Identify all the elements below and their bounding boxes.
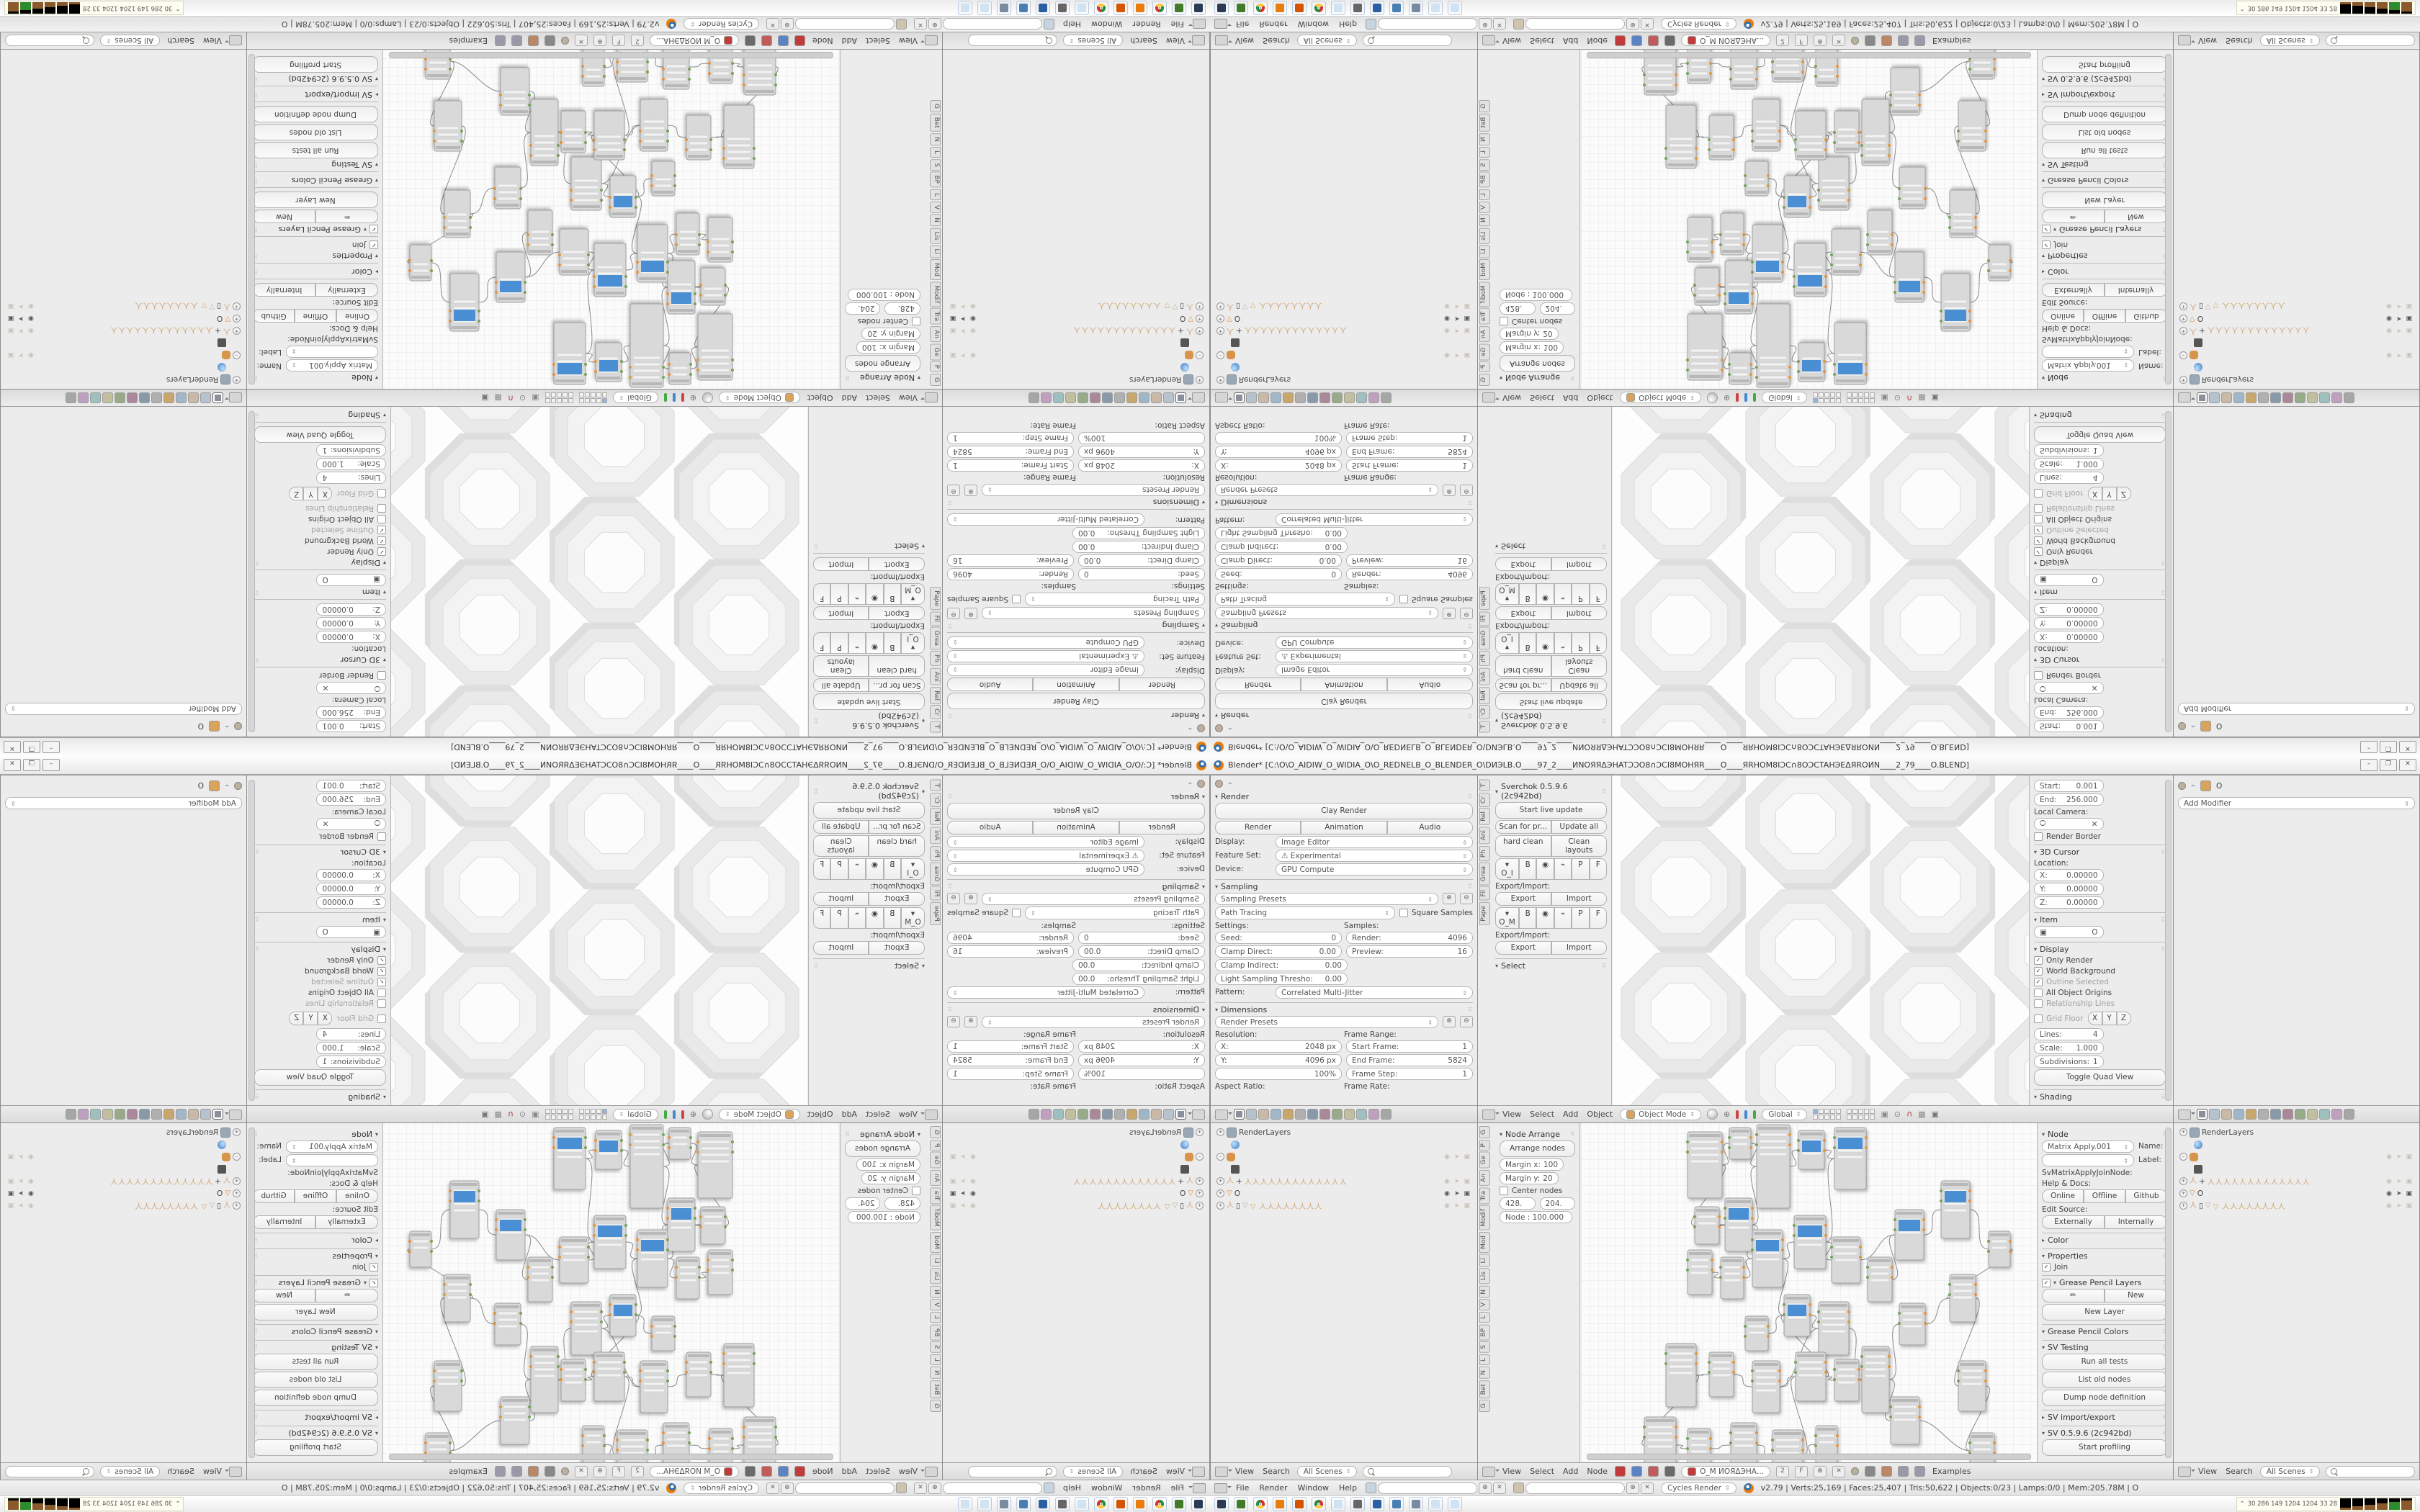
node-socket-in[interactable] (1833, 1378, 1836, 1381)
nodeprops-join-checkbox[interactable]: ✓Join (2042, 1263, 2167, 1272)
camera-toggle-icon[interactable]: ▣ (8, 328, 14, 335)
camera-toggle-icon[interactable]: ▣ (950, 352, 956, 359)
node-socket-out[interactable] (1801, 60, 1804, 63)
add-modifier-dropdown[interactable]: Add Modifier (5, 797, 242, 809)
layer-cell[interactable] (557, 1115, 562, 1120)
view-render-border-checkbox[interactable]: Render Border (254, 832, 386, 841)
node-socket-in[interactable] (1833, 363, 1836, 366)
render-x-field[interactable]: 100% (1078, 432, 1205, 444)
view-scale--field[interactable]: Scale:1.000 (317, 458, 387, 470)
window-titlebar[interactable]: Blender* [C:\O\O_AIDIW_O_WIDIA_O\O_REDNE… (0, 737, 1210, 756)
node-socket-in[interactable] (1724, 292, 1726, 295)
snap-magnet-icon[interactable]: ∪ (1906, 1110, 1912, 1119)
visibility-toggles[interactable]: ◉➤▣ (5, 1190, 34, 1197)
node-socket-in[interactable] (624, 285, 627, 288)
properties-tab-11-icon[interactable] (78, 1109, 89, 1120)
object-breadcrumb[interactable]: O (198, 722, 204, 731)
node-socket-out[interactable] (616, 71, 619, 73)
info-editor-icon[interactable] (1193, 1483, 1206, 1493)
pin-icon[interactable] (1197, 780, 1205, 788)
node-tab-bp[interactable]: BP (930, 172, 941, 188)
arrange-204--field[interactable]: 204. (1540, 302, 1576, 315)
properties-tab-2-icon[interactable] (1151, 392, 1162, 403)
view-toggle-quad-view-button[interactable]: Toggle Quad View (2034, 1069, 2166, 1086)
header-tool-2-icon[interactable] (1898, 35, 1909, 46)
square-samples-checkbox[interactable]: Square Samples (947, 909, 1021, 917)
expand-icon[interactable]: – (233, 1153, 241, 1161)
outliner-row[interactable] (947, 1163, 1205, 1175)
layer-cell[interactable] (1847, 392, 1852, 397)
node-socket-in[interactable] (689, 363, 692, 366)
tree-type-1-icon[interactable] (778, 35, 789, 46)
sverchok-node[interactable] (650, 1316, 676, 1351)
nodeprops-join-checkbox[interactable]: ✓Join (253, 240, 378, 249)
blender-app-icon[interactable] (1273, 1, 1287, 15)
node-socket-out[interactable] (707, 240, 709, 243)
render-animation-button[interactable]: Animation (1301, 678, 1386, 691)
header-tool-1-icon[interactable] (1881, 35, 1892, 46)
sverchok-node[interactable] (1866, 210, 1894, 255)
panel-header-render-dimensions[interactable]: ▾Dimensions⠿ (1215, 1002, 1473, 1014)
outliner2-menu-search[interactable]: Search (2224, 36, 2254, 45)
node-socket-in[interactable] (524, 1228, 526, 1231)
sverchok-toggle-⌁[interactable]: ⌁ (848, 583, 866, 605)
node-socket-in[interactable] (731, 251, 734, 253)
node-socket-out[interactable] (2009, 259, 2012, 262)
layer-cell[interactable] (596, 1115, 601, 1120)
view3d-menu-view[interactable]: View (1501, 1110, 1523, 1119)
outliner-row[interactable] (1215, 1138, 1473, 1151)
node-socket-in[interactable] (623, 138, 626, 141)
panel-header-nodeprops-node[interactable]: ▾Node⠿ (253, 373, 378, 382)
menu-file[interactable]: File (1234, 19, 1250, 29)
node-socket-in[interactable] (698, 243, 701, 246)
shelf-tab-t[interactable]: T (930, 721, 941, 733)
tree-type-2-icon[interactable] (761, 35, 772, 46)
node-socket-in[interactable] (1894, 291, 1896, 294)
viewport-canvas[interactable] (391, 775, 807, 1105)
node-socket-out[interactable] (526, 1276, 529, 1279)
sverchok-node[interactable] (666, 261, 696, 314)
scene-field[interactable] (1525, 1482, 1625, 1494)
node-socket-in[interactable] (1814, 65, 1817, 68)
view-x--field[interactable]: X:0.00000 (2034, 631, 2104, 643)
node-socket-out[interactable] (743, 84, 745, 86)
node-socket-in[interactable] (753, 1352, 756, 1355)
tree-type-0-icon[interactable] (1615, 35, 1626, 46)
node-tab-p[interactable]: P (1479, 361, 1490, 372)
node-socket-out[interactable] (1749, 363, 1752, 366)
preset-add-button[interactable]: ⊕ (964, 485, 977, 496)
node-socket-in[interactable] (603, 1434, 606, 1437)
node-tab-modif[interactable]: Modif (930, 282, 941, 307)
node-socket-in[interactable] (666, 261, 669, 264)
tree-type-2-icon[interactable] (1648, 35, 1659, 46)
cursor-icon[interactable]: ➤ (2396, 352, 2402, 359)
node-tab-s[interactable]: S (930, 1341, 941, 1353)
render-start-frame--field[interactable]: Start Frame:1 (1346, 459, 1473, 472)
arrange-margin-x--field[interactable]: Margin x:100 (856, 341, 920, 354)
viewport-shading-icon[interactable] (702, 1109, 713, 1120)
node-socket-in[interactable] (1664, 1352, 1667, 1355)
node-socket-out[interactable] (1788, 366, 1791, 369)
panel-header-nodeprops-grease-pencil-layers[interactable]: ✓▾Grease Pencil Layers⠿ (2042, 225, 2167, 237)
node-socket-out[interactable] (1809, 1313, 1811, 1316)
node-tab-ge[interactable]: Ge (930, 1152, 941, 1169)
view-end--field[interactable]: End:256.000 (317, 793, 387, 806)
layer-cell[interactable] (596, 398, 601, 403)
outliner-row[interactable]: +人+人人人人人人人人人人人人人◉➤▣ (5, 325, 242, 337)
square-samples-checkbox[interactable]: Square Samples (1399, 909, 1473, 917)
tree-add-button[interactable]: ⊕ (1814, 1466, 1827, 1477)
outliner-row[interactable] (1215, 337, 1473, 349)
tray-expand-icon[interactable]: ⌃ (175, 1500, 180, 1508)
image-viewer-icon[interactable] (1016, 1, 1031, 15)
node-socket-out[interactable] (1721, 369, 1724, 372)
outliner-row[interactable] (2178, 1138, 2415, 1151)
node-tab-li[interactable]: Li (930, 1254, 941, 1267)
node-socket-out[interactable] (616, 1439, 619, 1441)
manipulator-2-icon[interactable] (1753, 1110, 1756, 1119)
sverchok-node[interactable] (526, 1257, 554, 1302)
node-socket-out[interactable] (529, 144, 532, 147)
pin-icon[interactable] (1851, 1467, 1859, 1475)
sverchok-toggle-⌁[interactable]: ⌁ (1554, 907, 1572, 929)
render-display--select[interactable]: Image Editor (1276, 836, 1473, 848)
node-socket-in[interactable] (1751, 1380, 1754, 1382)
sverchok-update-all-button[interactable]: Update all (813, 678, 869, 692)
outliner1-menu-view[interactable]: View (1165, 36, 1186, 45)
cursor-icon[interactable]: ➤ (19, 1202, 24, 1210)
render-feature-set--select[interactable]: ⚠ Experimental (1276, 650, 1473, 662)
node-socket-out[interactable] (1891, 1266, 1894, 1269)
node-socket-out[interactable] (1755, 68, 1758, 71)
node-socket-out[interactable] (526, 243, 529, 246)
properties-tab-12-icon[interactable] (2344, 392, 2354, 403)
panel-header-view-item[interactable]: ▾Item⠿ (254, 588, 386, 600)
expand-icon[interactable]: + (2179, 1128, 2187, 1136)
speaker-icon[interactable] (1055, 1497, 1070, 1511)
axis-x-toggle[interactable]: X (318, 487, 333, 500)
visibility-toggles[interactable]: ◉➤▣ (1444, 352, 1473, 359)
grid-floor-checkbox[interactable]: Grid Floor (2034, 487, 2084, 500)
eye-icon[interactable]: ◉ (28, 303, 34, 310)
node-socket-out[interactable] (1918, 94, 1921, 96)
node-socket-in[interactable] (688, 68, 691, 71)
panel-header-arrange-node-arrange[interactable]: ▾Node Arrange⠿ (1500, 1130, 1575, 1139)
node-menu-node[interactable]: Node (811, 36, 835, 45)
properties-tab-12-icon[interactable] (66, 1109, 76, 1120)
outliner-row[interactable]: +人▯▽▽ 人人人人人人人人◉➤▣ (5, 1200, 242, 1212)
panel-header-render-render[interactable]: ▾Render⠿ (947, 792, 1205, 801)
node-socket-out[interactable] (1922, 281, 1925, 284)
pin-icon[interactable] (561, 1467, 569, 1475)
view-end--field[interactable]: End:256.000 (317, 706, 387, 719)
outliner-row[interactable] (5, 1163, 242, 1175)
node-socket-in[interactable] (1729, 1441, 1732, 1444)
properties-tab-3-icon[interactable] (176, 392, 187, 403)
node-tab-n[interactable]: N (1479, 1367, 1490, 1379)
add-modifier-dropdown[interactable]: Add Modifier (2178, 703, 2415, 715)
node-socket-in[interactable] (557, 154, 560, 157)
panel-header-view-3d-cursor[interactable]: ▾3D Cursor⠿ (2034, 655, 2166, 667)
layer-cell[interactable] (1858, 1115, 1863, 1120)
node-socket-in[interactable] (1729, 68, 1732, 71)
sverchok-node[interactable] (1794, 111, 1827, 160)
node-socket-out[interactable] (558, 253, 561, 256)
node-socket-in[interactable] (1866, 1266, 1869, 1269)
pivot-icon[interactable]: ⊕ (1724, 1110, 1730, 1119)
layer-cell[interactable] (563, 398, 568, 403)
node-socket-out[interactable] (662, 1441, 665, 1444)
sverchok-node[interactable] (560, 111, 587, 153)
outliner-row[interactable]: +人▯▽▽ 人人人人人人人人◉➤▣ (2178, 1200, 2415, 1212)
camera-toggle-icon[interactable]: ▣ (8, 1178, 14, 1185)
node-socket-out[interactable] (743, 73, 745, 76)
node-socket-in[interactable] (1793, 275, 1796, 278)
tree-type-1-icon[interactable] (1631, 35, 1642, 46)
properties-tab-0-icon[interactable] (2197, 392, 2208, 403)
properties-tab-4-icon[interactable] (1283, 1109, 1294, 1120)
grid-floor-checkbox[interactable]: Grid Floor (2034, 1012, 2084, 1025)
chrome-icon[interactable] (1253, 1497, 1268, 1511)
render-render--field[interactable]: Render:4096 (947, 568, 1074, 580)
render-x-field[interactable]: 100% (1215, 1068, 1342, 1080)
render-y--field[interactable]: Y:4096 px (1078, 446, 1205, 458)
outliner-row[interactable]: +▽O◉➤▣ (5, 312, 242, 325)
node-editor[interactable]: GPGeAnTraModifModLiLisNVLBPSLNBetG ▾Node… (1477, 32, 2174, 390)
node-socket-out[interactable] (639, 1369, 642, 1372)
node-socket-in[interactable] (635, 1303, 637, 1306)
header-tool-1-icon[interactable] (528, 35, 539, 46)
nodeprops-label--select[interactable] (2042, 1154, 2134, 1166)
sverchok-import-button[interactable]: Import (1551, 892, 1608, 906)
properties-editor-icon[interactable] (1215, 1110, 1228, 1120)
sverchok-toggle-B[interactable]: B (884, 858, 901, 880)
cursor-icon[interactable]: ➤ (19, 352, 24, 359)
node-socket-out[interactable] (639, 1380, 642, 1382)
node-socket-out[interactable] (449, 1200, 452, 1202)
panel-header-nodeprops-sv-0-5-9-6-2c942bd-[interactable]: ▾SV 0.5.9.6 (2c942bd)⠿ (253, 74, 378, 86)
outliner1-menu-view[interactable]: View (1234, 36, 1255, 45)
integrator-select[interactable]: Path Tracing (1215, 906, 1395, 919)
sverchok-group-label[interactable]: ▾ O_I (901, 858, 925, 880)
node-socket-out[interactable] (1709, 1447, 1712, 1450)
properties-tab-3-icon[interactable] (2233, 392, 2244, 403)
mode-select[interactable]: Object Mode⇕ (719, 1109, 800, 1120)
node-socket-out[interactable] (1767, 184, 1770, 187)
panel-header-nodeprops-properties[interactable]: ▾Properties⠿ (253, 251, 378, 264)
panel-header-render-sampling[interactable]: ▾Sampling⠿ (947, 879, 1205, 891)
node-tab-l[interactable]: L (930, 1354, 941, 1365)
node-socket-in[interactable] (1894, 1218, 1896, 1221)
node-socket-in[interactable] (620, 1149, 623, 1152)
node-socket-in[interactable] (709, 1361, 712, 1364)
node-tab-n[interactable]: N (930, 133, 941, 145)
view3d-menu-select[interactable]: Select (1528, 1110, 1556, 1119)
tree-unlink-button[interactable]: ✕ (1832, 35, 1845, 47)
expand-icon[interactable]: + (1216, 327, 1224, 335)
properties-tab-10-icon[interactable] (2319, 392, 2330, 403)
node-tab-s[interactable]: S (930, 159, 941, 171)
node-socket-out[interactable] (1755, 1441, 1758, 1444)
node-socket-out[interactable] (696, 1151, 699, 1153)
layer-grid-0[interactable] (1813, 1109, 1841, 1120)
screen-layout-field[interactable] (943, 19, 1042, 30)
node-socket-out[interactable] (1809, 1303, 1811, 1306)
panel-header-sverchok-sverchok-0-5-9-6-2c942bd-[interactable]: ▾Sverchok 0.5.9.6 (2c942bd)⠿ (813, 711, 925, 730)
screen-delete-button[interactable]: ✕ (914, 1482, 927, 1494)
header-tool-3-icon[interactable] (495, 35, 506, 46)
node-socket-in[interactable] (1833, 131, 1836, 134)
sverchok-node[interactable] (668, 1128, 692, 1159)
panel-header-nodeprops-properties[interactable]: ▾Properties⠿ (2042, 251, 2167, 264)
menu-file[interactable]: File (1234, 1483, 1250, 1493)
panel-header-view-3d-cursor[interactable]: ▾3D Cursor⠿ (254, 845, 386, 857)
layer-cell[interactable] (1870, 392, 1875, 397)
node-socket-out[interactable] (1888, 154, 1891, 157)
layer-cell[interactable] (1813, 392, 1818, 397)
sverchok-toggle-P[interactable]: P (830, 907, 848, 929)
node-tab-lis[interactable]: Lis (1479, 1268, 1490, 1284)
node-socket-out[interactable] (408, 1250, 411, 1253)
panel-header-nodeprops-grease-pencil-layers[interactable]: ✓▾Grease Pencil Layers⠿ (2042, 1275, 2167, 1287)
node-menu-view[interactable]: View (897, 36, 919, 45)
expand-icon[interactable]: + (2179, 315, 2187, 323)
view-lines--field[interactable]: Lines:4 (317, 472, 387, 484)
render-frame-step--field[interactable]: Frame Step:1 (1346, 432, 1473, 444)
properties-tab-6-icon[interactable] (1307, 1109, 1318, 1120)
shelf-tab-cr[interactable]: Cr (1479, 706, 1490, 720)
outliner-row[interactable]: +人+人人人人人人人人人人人人人◉➤▣ (2178, 325, 2415, 337)
node-socket-out[interactable] (707, 251, 709, 253)
panel-header-sverchok-select[interactable]: ▾Select⠿ (1495, 541, 1607, 554)
layer-cell[interactable] (563, 392, 568, 397)
speaker-icon[interactable] (1055, 1, 1070, 15)
node-socket-in[interactable] (1889, 1405, 1892, 1408)
scene-add-button[interactable]: ⊕ (1626, 1482, 1639, 1494)
sverchok-node[interactable] (639, 1361, 669, 1413)
eye-icon[interactable]: ◉ (2386, 1190, 2392, 1197)
outliner2-menu-view[interactable]: View (202, 1467, 223, 1476)
sverchok-toggle-P[interactable]: P (1572, 907, 1589, 929)
node-socket-out[interactable] (1922, 1218, 1925, 1221)
node-tab-ge[interactable]: Ge (930, 343, 941, 360)
arrange-204--field[interactable]: 204. (845, 1197, 881, 1210)
node-tab-l[interactable]: L (930, 1312, 941, 1323)
node-socket-in[interactable] (1728, 363, 1731, 366)
examples-menu[interactable]: Examples (448, 1467, 489, 1476)
properties-tab-2-icon[interactable] (188, 1109, 199, 1120)
node-socket-in[interactable] (519, 1322, 522, 1325)
node-socket-in[interactable] (688, 1441, 691, 1444)
node-socket-out[interactable] (558, 264, 561, 266)
node-socket-out[interactable] (1824, 275, 1827, 278)
tree-type-0-icon[interactable] (794, 35, 805, 46)
node-socket-out[interactable] (499, 1405, 502, 1408)
node-socket-out[interactable] (1751, 1217, 1754, 1220)
node-socket-in[interactable] (1957, 140, 1960, 143)
layer-cell[interactable] (545, 1115, 550, 1120)
arrange-margin-x--field[interactable]: Margin x:100 (1500, 341, 1564, 354)
examples-menu[interactable]: Examples (1931, 36, 1972, 45)
view-y--field[interactable]: Y:0.00000 (317, 617, 387, 629)
proportional-edit-icon[interactable]: ⊙ (1894, 1110, 1901, 1119)
node-socket-out[interactable] (668, 1136, 671, 1139)
render-frame-step--field[interactable]: Frame Step:1 (1346, 1068, 1473, 1080)
arrange-428--field[interactable]: 428. (885, 1197, 921, 1210)
node-socket-out[interactable] (1718, 294, 1721, 297)
node-tab-mod[interactable]: Mod (1479, 1232, 1490, 1253)
sverchok-toggle-B[interactable]: B (1519, 632, 1536, 654)
expand-icon[interactable]: + (233, 1128, 241, 1136)
sverchok-scan-for-pr--button[interactable]: Scan for pr... (1495, 820, 1551, 834)
node-socket-in[interactable] (646, 71, 649, 73)
node-socket-out[interactable] (1781, 261, 1784, 264)
screen-layout-icon[interactable] (1366, 19, 1376, 30)
visibility-toggles[interactable]: ◉➤▣ (947, 328, 976, 335)
outliner-row[interactable] (2178, 361, 2415, 374)
node-socket-in[interactable] (519, 187, 522, 190)
view-only-render-checkbox[interactable]: ✓Only Render (2034, 547, 2166, 556)
maximize-button[interactable]: ❐ (2380, 759, 2397, 771)
node-socket-out[interactable] (1767, 174, 1770, 177)
axis-z-toggle[interactable]: Z (290, 487, 304, 500)
axis-y-toggle[interactable]: Y (304, 1012, 318, 1025)
view---field[interactable]: 🞅✕ (317, 682, 387, 694)
sverchok-export-button[interactable]: Export (1495, 606, 1551, 620)
preset-remove-button[interactable]: ⊖ (1460, 485, 1473, 496)
panel-header-nodeprops-node[interactable]: ▾Node⠿ (253, 1130, 378, 1139)
layer-cell[interactable] (557, 1109, 562, 1114)
nodeprops-online-button[interactable]: Online (2042, 309, 2084, 323)
node-canvas[interactable] (383, 50, 839, 389)
node-tab-p[interactable]: P (930, 361, 941, 372)
arrange-margin-y--field[interactable]: Margin y:20 (1500, 328, 1559, 340)
node-socket-out[interactable] (570, 1310, 573, 1313)
layer-cell[interactable] (1813, 398, 1818, 403)
sverchok-node[interactable] (1755, 304, 1791, 387)
render-preview--field[interactable]: Preview:16 (1346, 945, 1473, 958)
scene-add-button[interactable]: ⊕ (1626, 19, 1639, 30)
node-socket-out[interactable] (408, 269, 411, 272)
screen-add-button[interactable]: ⊕ (928, 19, 941, 30)
node-n-panel-scrollbar[interactable] (248, 54, 255, 384)
nodeprops-externally-button[interactable]: Externally (2042, 1215, 2105, 1229)
cursor-icon[interactable]: ➤ (1454, 1190, 1460, 1197)
node-socket-out[interactable] (1749, 373, 1752, 376)
manipulator-0-icon[interactable] (681, 394, 684, 402)
node-socket-in[interactable] (689, 1136, 692, 1139)
sverchok-import-button[interactable]: Import (1551, 606, 1608, 620)
node-socket-in[interactable] (478, 1200, 480, 1202)
tree-type-2-icon[interactable] (1648, 1466, 1659, 1477)
view-z--field[interactable]: Z:0.00000 (317, 896, 387, 909)
view3d-menu-select[interactable]: Select (864, 393, 892, 402)
node-socket-in[interactable] (551, 1266, 554, 1269)
layer-cell[interactable] (1852, 1109, 1857, 1114)
outliner-row[interactable]: +▽O◉➤▣ (947, 312, 1205, 325)
sverchok-node[interactable] (707, 1250, 734, 1295)
visibility-toggles[interactable]: ◉➤▣ (1444, 1178, 1473, 1185)
node-socket-in[interactable] (694, 292, 696, 295)
arrange-center-nodes-checkbox[interactable]: Center nodes (845, 317, 920, 325)
screen-layout-field[interactable] (943, 1482, 1042, 1494)
sverchok-group-label[interactable]: ▾ O_M (1495, 583, 1519, 605)
node-socket-in[interactable] (662, 1133, 665, 1136)
node-socket-out[interactable] (1788, 1133, 1791, 1136)
sverchok-toggle-B[interactable]: B (884, 583, 901, 605)
